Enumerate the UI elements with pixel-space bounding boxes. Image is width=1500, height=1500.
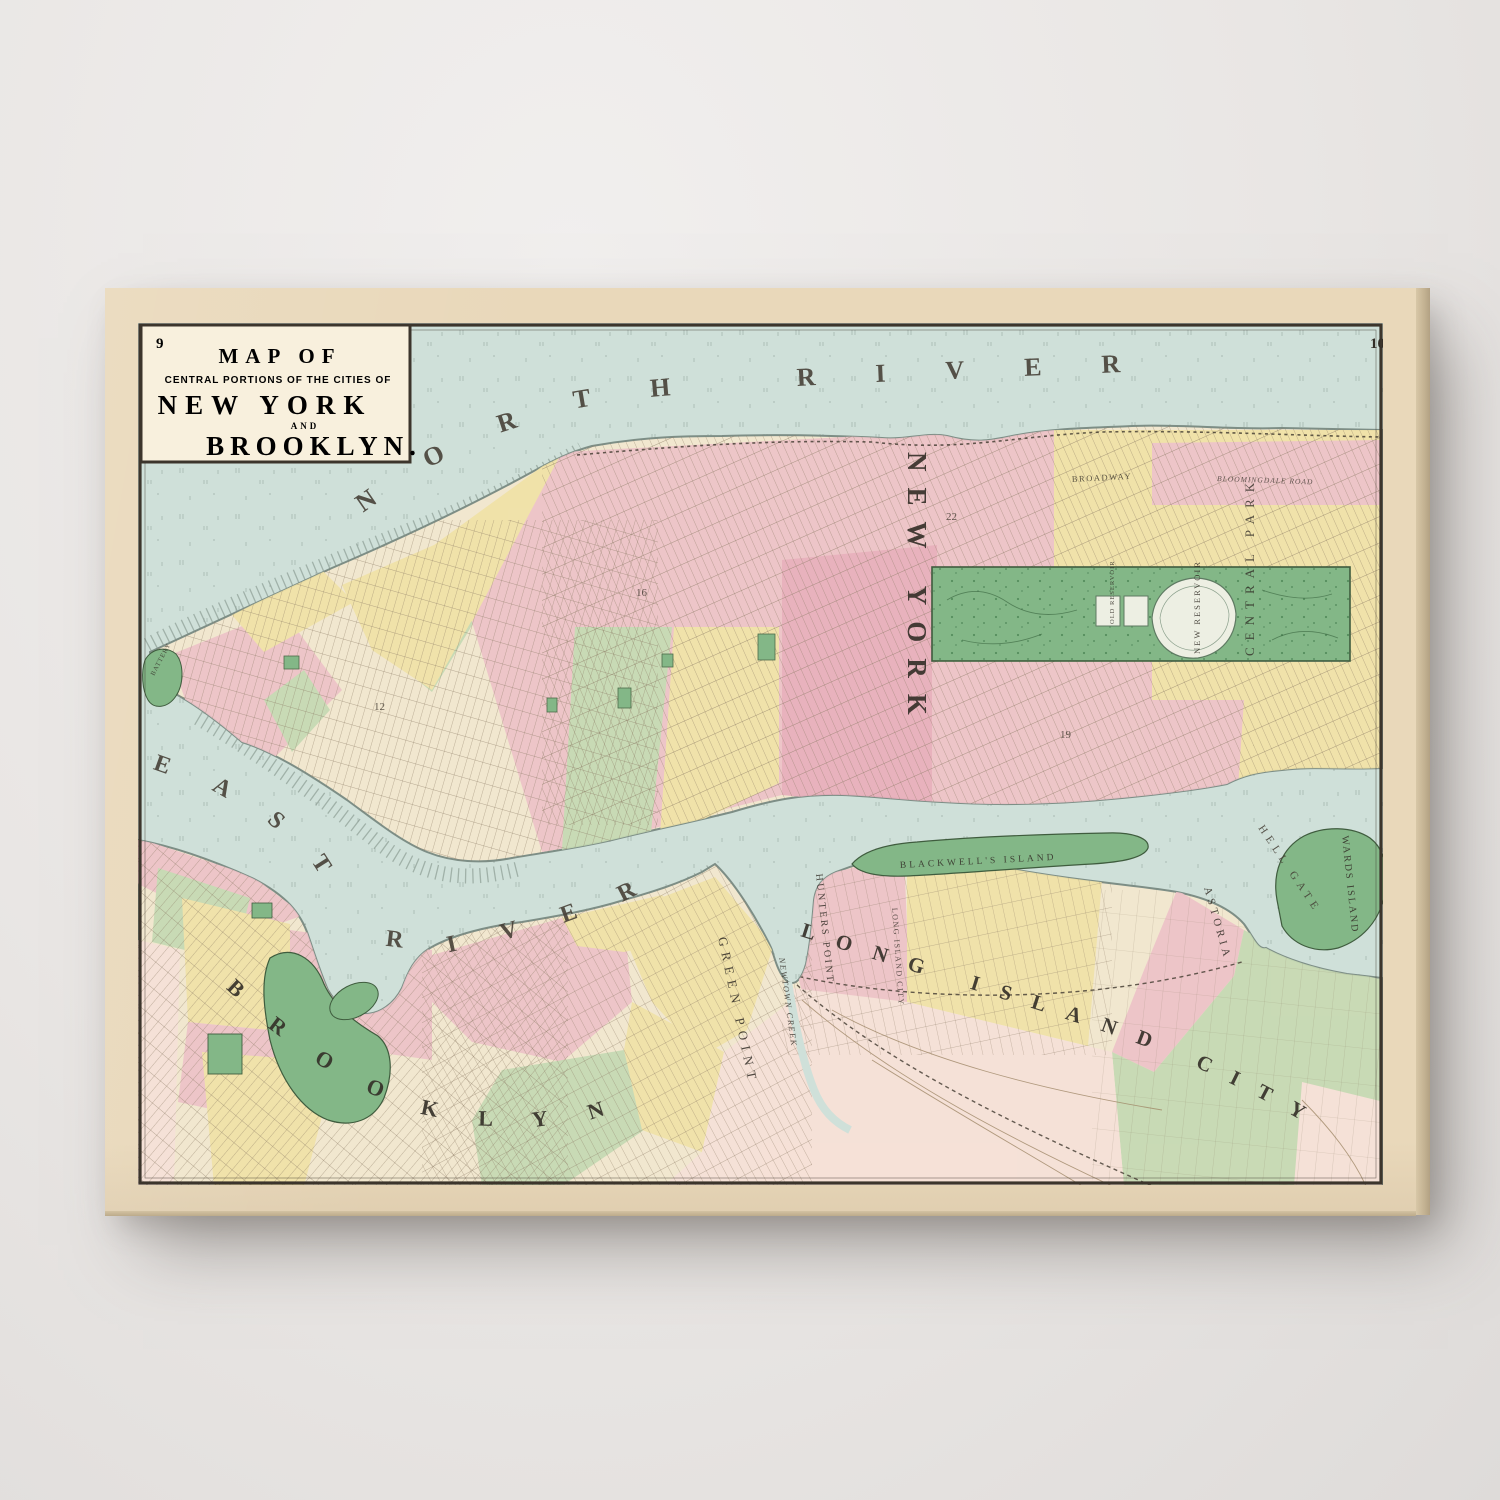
park-square [758, 634, 775, 660]
central-park [932, 567, 1350, 661]
old-reservoir-basin [1096, 596, 1120, 626]
map-area: NORTH RIVER EAST RIVER HELL GATE NEW YOR… [138, 323, 1383, 1185]
page-number-right: 10 [1370, 336, 1383, 352]
wall-background: NORTH RIVER EAST RIVER HELL GATE NEW YOR… [0, 0, 1500, 1500]
park-square [547, 698, 557, 712]
canvas-print: NORTH RIVER EAST RIVER HELL GATE NEW YOR… [105, 288, 1430, 1215]
label-central-park: CENTRAL PARK [1242, 476, 1257, 656]
map-sheet: NORTH RIVER EAST RIVER HELL GATE NEW YOR… [105, 288, 1416, 1215]
canvas-side-edge [1416, 288, 1430, 1215]
page-number-left: 9 [156, 336, 164, 352]
cartouche-heading: MAP OF [218, 344, 341, 368]
cartouche-and: AND [291, 421, 320, 431]
label-new-york: NEW YORK [902, 452, 932, 731]
park-square [252, 903, 272, 918]
ward-number: 12 [374, 701, 385, 713]
park-square [208, 1034, 242, 1074]
cartouche-city-brooklyn: BROOKLYN. [206, 431, 422, 461]
cartouche-subheading: CENTRAL PORTIONS OF THE CITIES OF [165, 375, 392, 386]
ward-number: 16 [636, 587, 648, 599]
old-reservoir-basin [1124, 596, 1148, 626]
ward-number: 22 [946, 511, 957, 523]
cartouche-city-new-york: NEW YORK [158, 390, 373, 420]
park-square [662, 654, 673, 667]
park-square [284, 656, 299, 669]
map-svg: NORTH RIVER EAST RIVER HELL GATE NEW YOR… [138, 323, 1383, 1185]
ward-number: 19 [1060, 729, 1072, 741]
label-new-reservoir: NEW RESERVOIR [1192, 560, 1202, 654]
park-square [618, 688, 631, 708]
label-old-reservoir: OLD RESERVOIR [1109, 560, 1116, 624]
title-cartouche: 9 MAP OF CENTRAL PORTIONS OF THE CITIES … [141, 325, 422, 462]
